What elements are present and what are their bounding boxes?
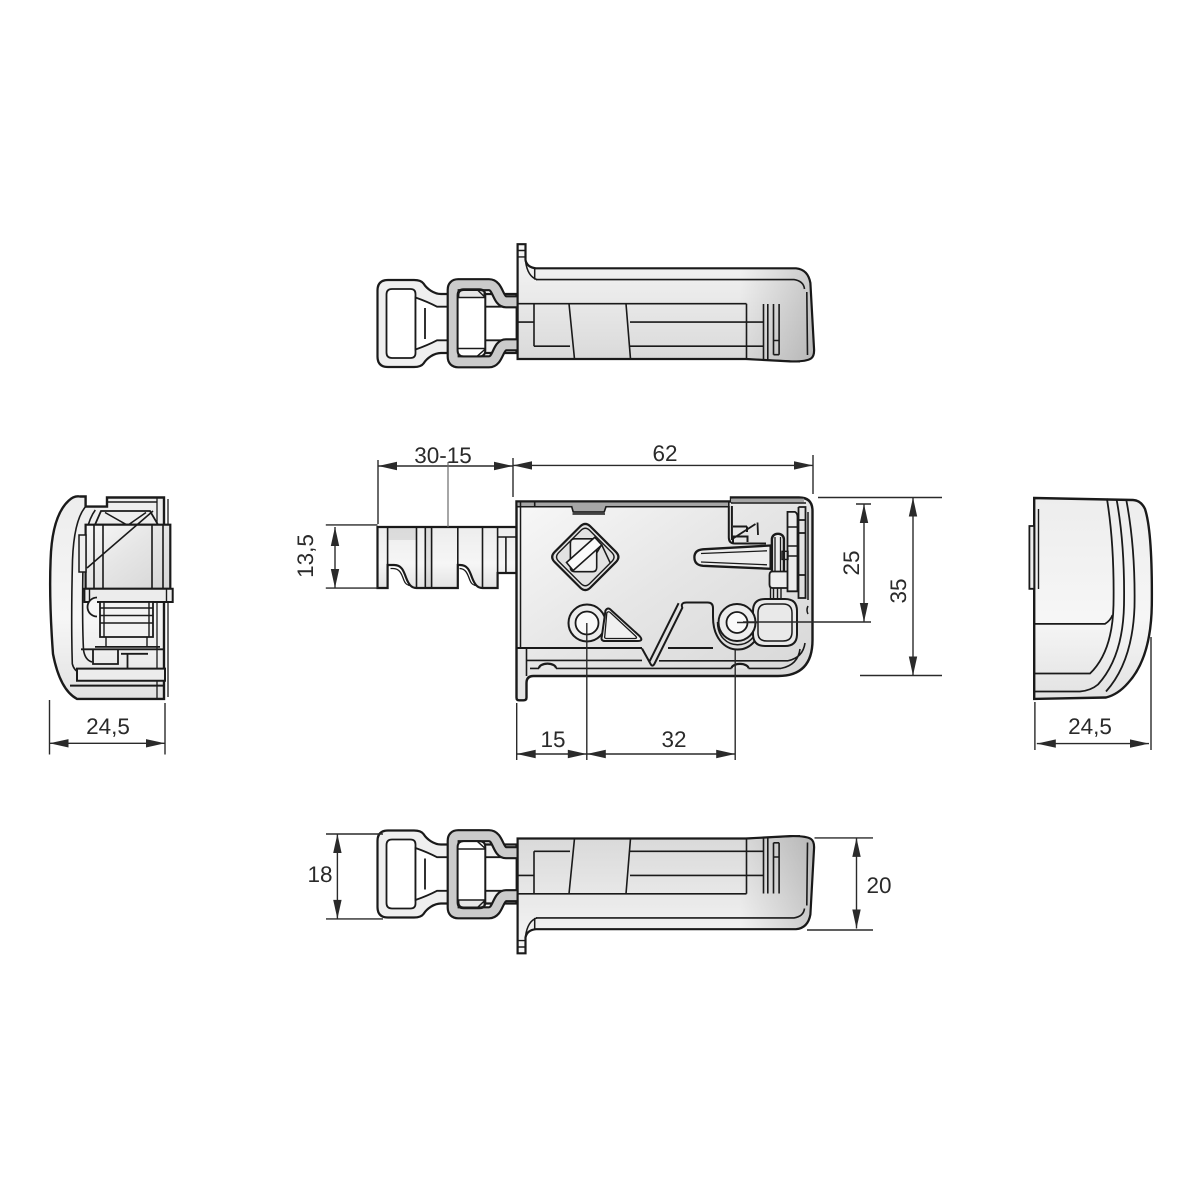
svg-text:15: 15 xyxy=(540,727,565,752)
svg-text:25: 25 xyxy=(839,550,864,575)
svg-text:18: 18 xyxy=(307,862,332,887)
svg-text:35: 35 xyxy=(886,578,911,603)
svg-text:24,5: 24,5 xyxy=(1068,714,1112,739)
svg-text:24,5: 24,5 xyxy=(86,714,130,739)
svg-text:32: 32 xyxy=(661,727,686,752)
svg-text:62: 62 xyxy=(652,441,677,466)
svg-text:20: 20 xyxy=(866,873,891,898)
svg-text:30-15: 30-15 xyxy=(414,443,472,468)
svg-text:13,5: 13,5 xyxy=(293,534,318,578)
